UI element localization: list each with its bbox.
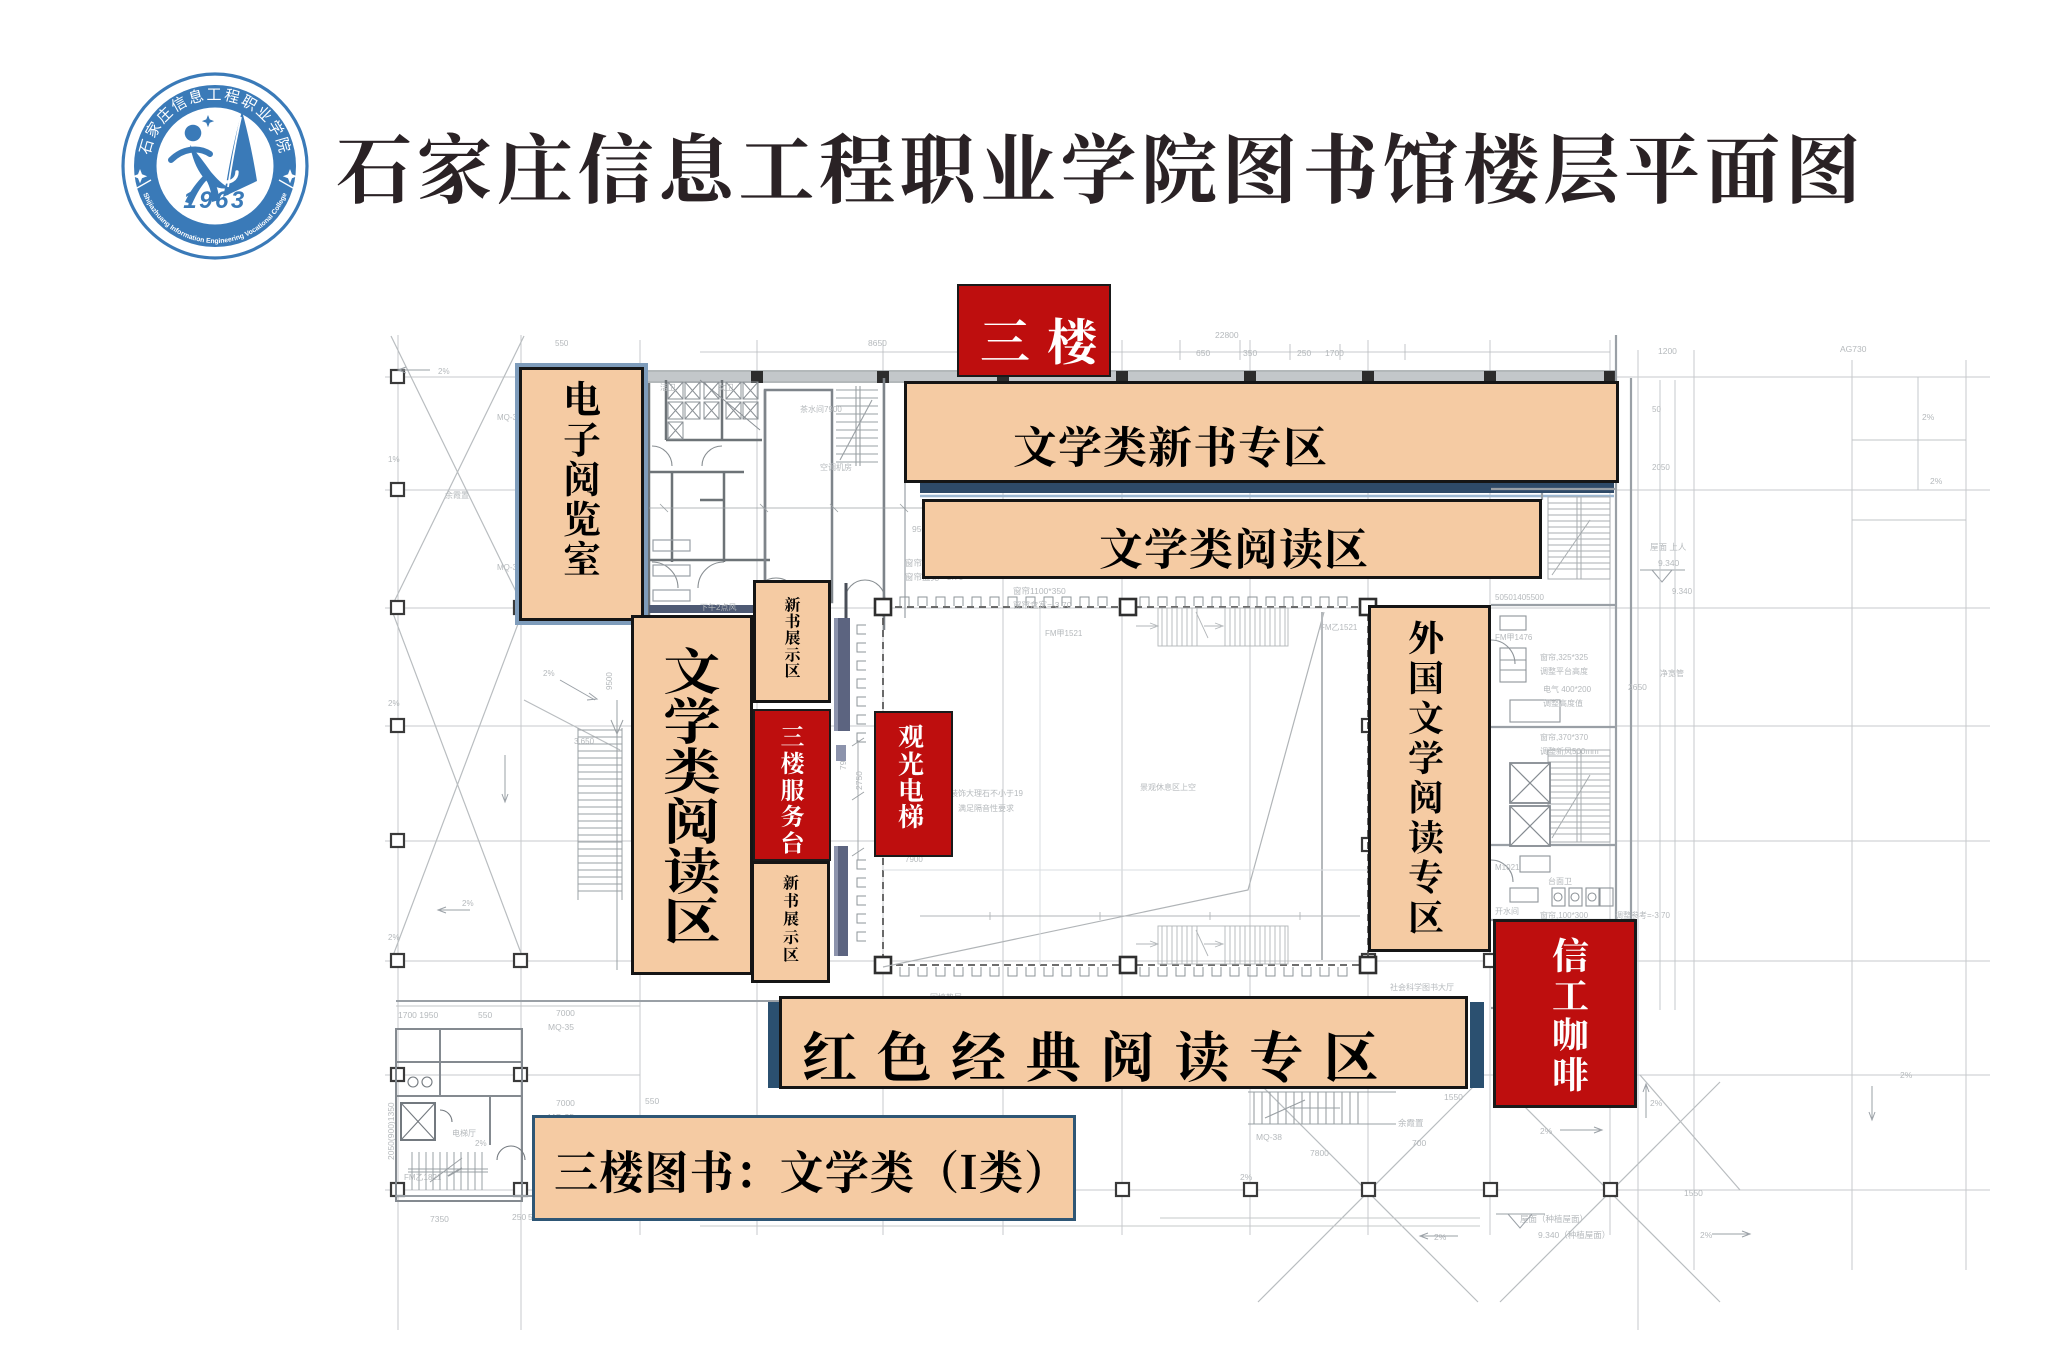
svg-text:22800: 22800 — [1215, 330, 1239, 340]
svg-text:景观休息区上空: 景观休息区上空 — [1140, 782, 1196, 792]
svg-text:FM甲1476: FM甲1476 — [1495, 633, 1533, 642]
svg-text:MQ-35: MQ-35 — [548, 1022, 574, 1032]
svg-text:茶水间7900: 茶水间7900 — [800, 404, 842, 414]
svg-text:女卫: 女卫 — [718, 382, 734, 392]
svg-text:窗帘1100*350: 窗帘1100*350 — [1013, 586, 1066, 596]
svg-text:净宽管: 净宽管 — [1660, 668, 1684, 678]
svg-text:1550: 1550 — [1684, 1188, 1703, 1198]
svg-text:1550: 1550 — [1444, 1092, 1463, 1102]
svg-text:2%: 2% — [1922, 412, 1935, 422]
svg-text:7000: 7000 — [556, 1008, 575, 1018]
svg-text:250: 250 — [1297, 348, 1311, 358]
svg-text:台面卫: 台面卫 — [1548, 876, 1572, 886]
svg-text:调整新风500mm: 调整新风500mm — [1540, 746, 1599, 756]
svg-text:FM乙1521: FM乙1521 — [1320, 623, 1358, 632]
svg-text:9.340（种植屋面）: 9.340（种植屋面） — [1538, 1230, 1610, 1240]
svg-text:装饰大理石不小于19: 装饰大理石不小于19 — [950, 788, 1023, 798]
svg-text:窗帘,370*370: 窗帘,370*370 — [1540, 732, 1589, 742]
svg-text:2%: 2% — [1700, 1230, 1713, 1240]
svg-text:社会科学图书大厅: 社会科学图书大厅 — [1390, 982, 1454, 992]
svg-text:开水间: 开水间 — [1495, 906, 1519, 916]
svg-text:1%: 1% — [388, 455, 400, 464]
svg-text:2%: 2% — [1434, 1232, 1447, 1242]
svg-text:2650: 2650 — [1628, 682, 1647, 692]
svg-text:余霞置: 余霞置 — [1398, 1118, 1424, 1128]
svg-text:50501405500: 50501405500 — [1495, 593, 1544, 602]
svg-text:1700: 1700 — [1325, 348, 1344, 358]
svg-text:250: 250 — [512, 1212, 526, 1222]
svg-text:1200: 1200 — [1658, 346, 1677, 356]
svg-text:2%: 2% — [1540, 1126, 1553, 1136]
svg-text:2%: 2% — [475, 1139, 487, 1148]
svg-text:窗帘,325*325: 窗帘,325*325 — [1540, 652, 1589, 662]
svg-text:电梯厅: 电梯厅 — [452, 1128, 476, 1138]
svg-text:2%: 2% — [543, 669, 555, 678]
svg-text:窗帘盒宽=-3.70: 窗帘盒宽=-3.70 — [1013, 600, 1072, 610]
svg-text:2%: 2% — [1900, 1070, 1913, 1080]
svg-text:AG730: AG730 — [1840, 344, 1867, 354]
svg-text:8650: 8650 — [868, 338, 887, 348]
svg-text:屋面 上人: 屋面 上人 — [1650, 542, 1687, 552]
svg-text:余霞置: 余霞置 — [445, 490, 469, 500]
svg-text:9.340: 9.340 — [1658, 558, 1680, 568]
svg-text:7350: 7350 — [430, 1214, 449, 1224]
svg-text:1700 1950: 1700 1950 — [398, 1010, 438, 1020]
svg-text:7000: 7000 — [556, 1098, 575, 1108]
svg-text:350: 350 — [1243, 348, 1257, 358]
svg-text:650: 650 — [1196, 348, 1210, 358]
svg-text:2050: 2050 — [1652, 463, 1670, 472]
svg-text:50: 50 — [1652, 405, 1661, 414]
svg-text:调整高度值: 调整高度值 — [1543, 698, 1583, 708]
svg-text:2750: 2750 — [854, 771, 864, 790]
svg-text:MQ-38: MQ-38 — [1256, 1132, 1282, 1142]
svg-text:洁卫: 洁卫 — [660, 382, 676, 392]
svg-text:2%: 2% — [438, 367, 450, 376]
svg-text:550: 550 — [645, 1096, 659, 1106]
svg-text:3.650: 3.650 — [574, 737, 595, 746]
svg-text:满足隔音性要求: 满足隔音性要求 — [958, 803, 1014, 813]
svg-text:2050(900)1350: 2050(900)1350 — [386, 1102, 396, 1160]
svg-text:550: 550 — [555, 339, 569, 348]
svg-text:2%: 2% — [1240, 1172, 1253, 1182]
svg-text:M1021: M1021 — [1495, 863, 1520, 872]
svg-text:调整平台高度: 调整平台高度 — [1540, 666, 1588, 676]
svg-text:空调机房: 空调机房 — [820, 462, 852, 472]
svg-text:2%: 2% — [1930, 476, 1943, 486]
svg-text:700: 700 — [1412, 1138, 1426, 1148]
svg-text:1963: 1963 — [183, 187, 246, 214]
svg-text:下午2点风: 下午2点风 — [700, 602, 736, 612]
svg-text:2%: 2% — [388, 933, 400, 942]
svg-text:7800: 7800 — [1310, 1148, 1329, 1158]
svg-text:电气 400*200: 电气 400*200 — [1543, 684, 1592, 694]
svg-text:9500: 9500 — [605, 672, 614, 690]
svg-text:550: 550 — [478, 1010, 492, 1020]
svg-text:FM甲1521: FM甲1521 — [1045, 629, 1083, 638]
svg-text:2%: 2% — [462, 899, 474, 908]
svg-text:2%: 2% — [388, 699, 400, 708]
svg-text:2%: 2% — [1650, 1098, 1663, 1108]
